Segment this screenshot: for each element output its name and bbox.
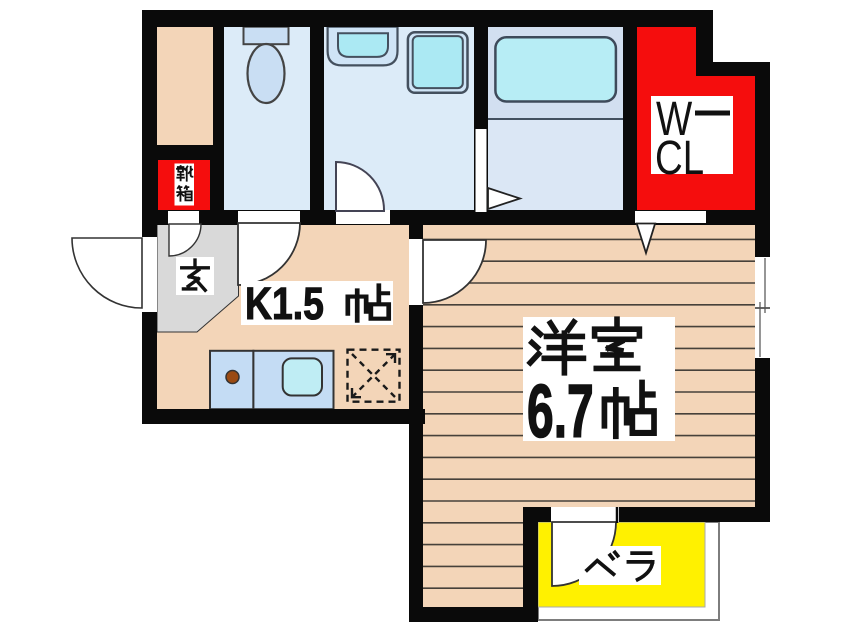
svg-text:CL: CL [655, 132, 704, 185]
svg-text:K1.5: K1.5 [245, 279, 324, 329]
svg-text:6.7: 6.7 [527, 370, 594, 453]
